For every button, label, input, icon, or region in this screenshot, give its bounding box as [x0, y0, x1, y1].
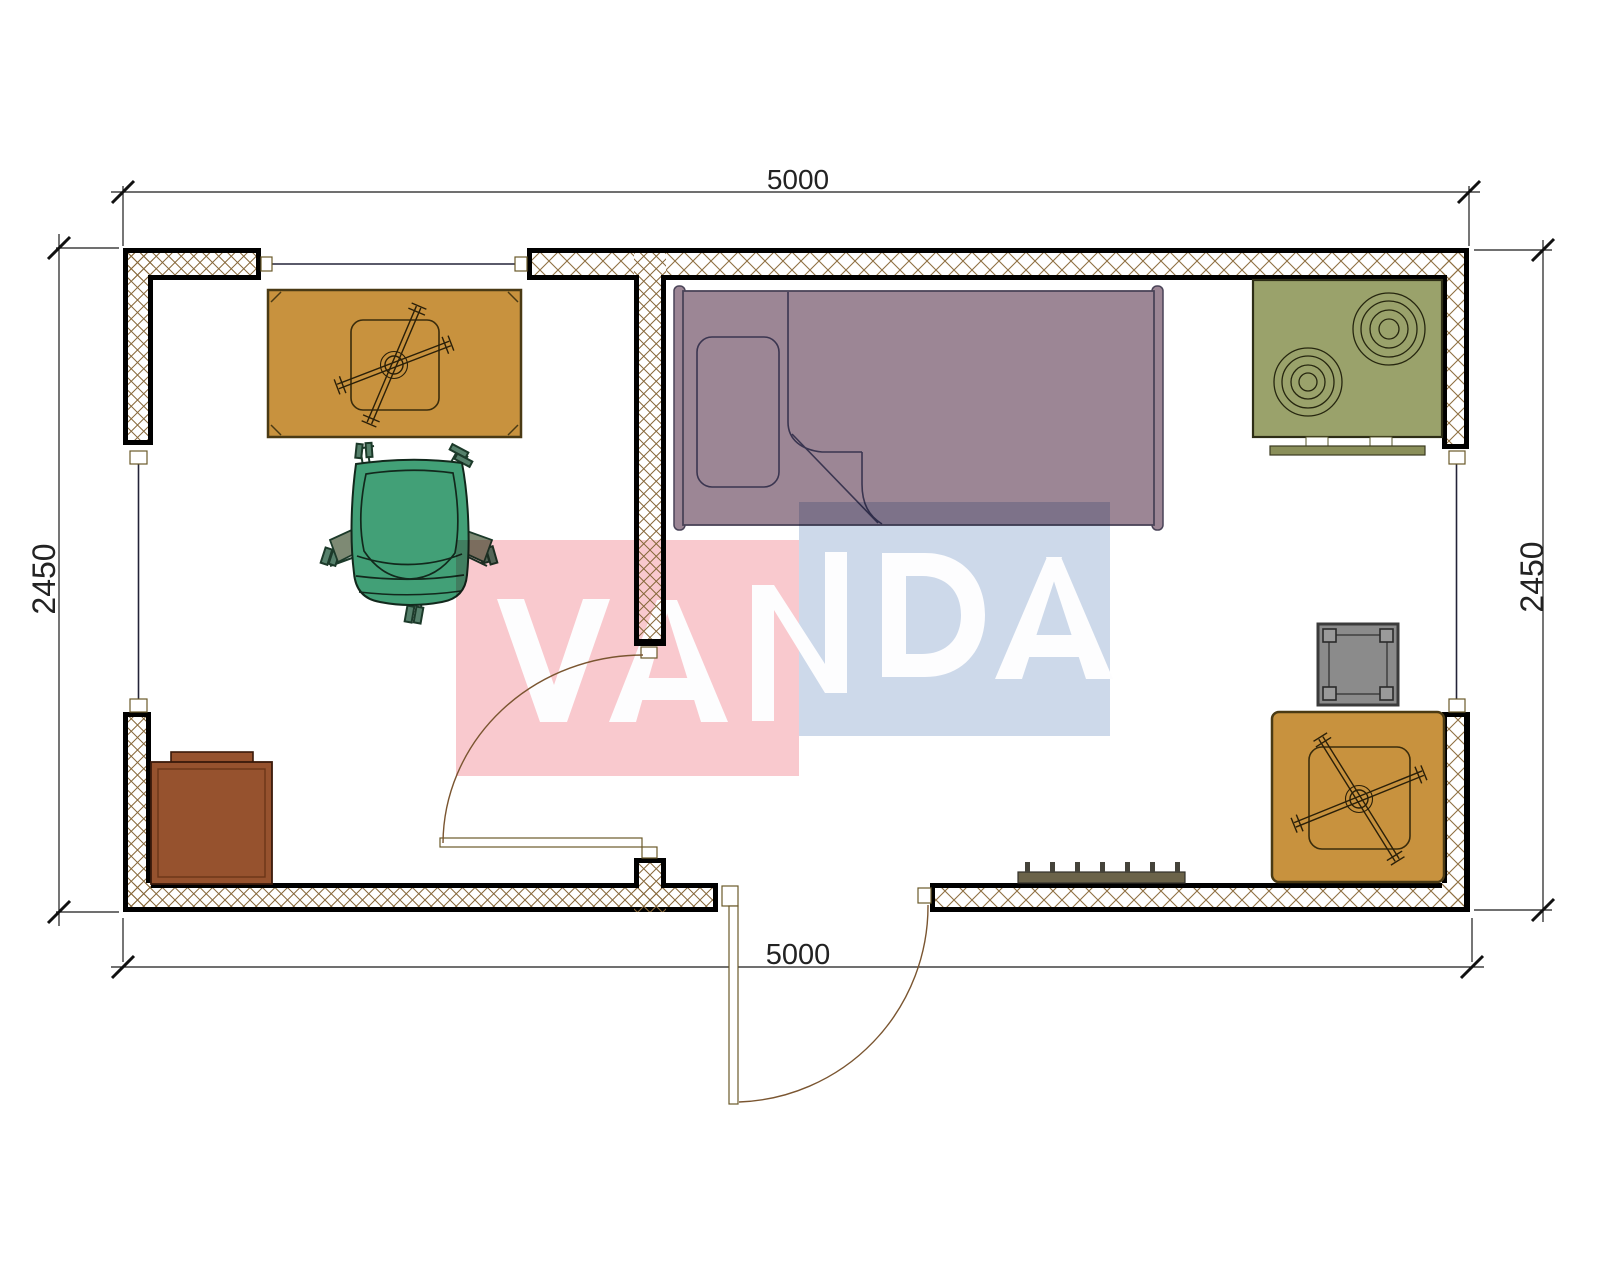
svg-text:5000: 5000	[766, 939, 831, 971]
svg-text:5000: 5000	[767, 164, 829, 195]
svg-text:2450: 2450	[1514, 541, 1550, 612]
svg-text:2450: 2450	[26, 543, 62, 614]
